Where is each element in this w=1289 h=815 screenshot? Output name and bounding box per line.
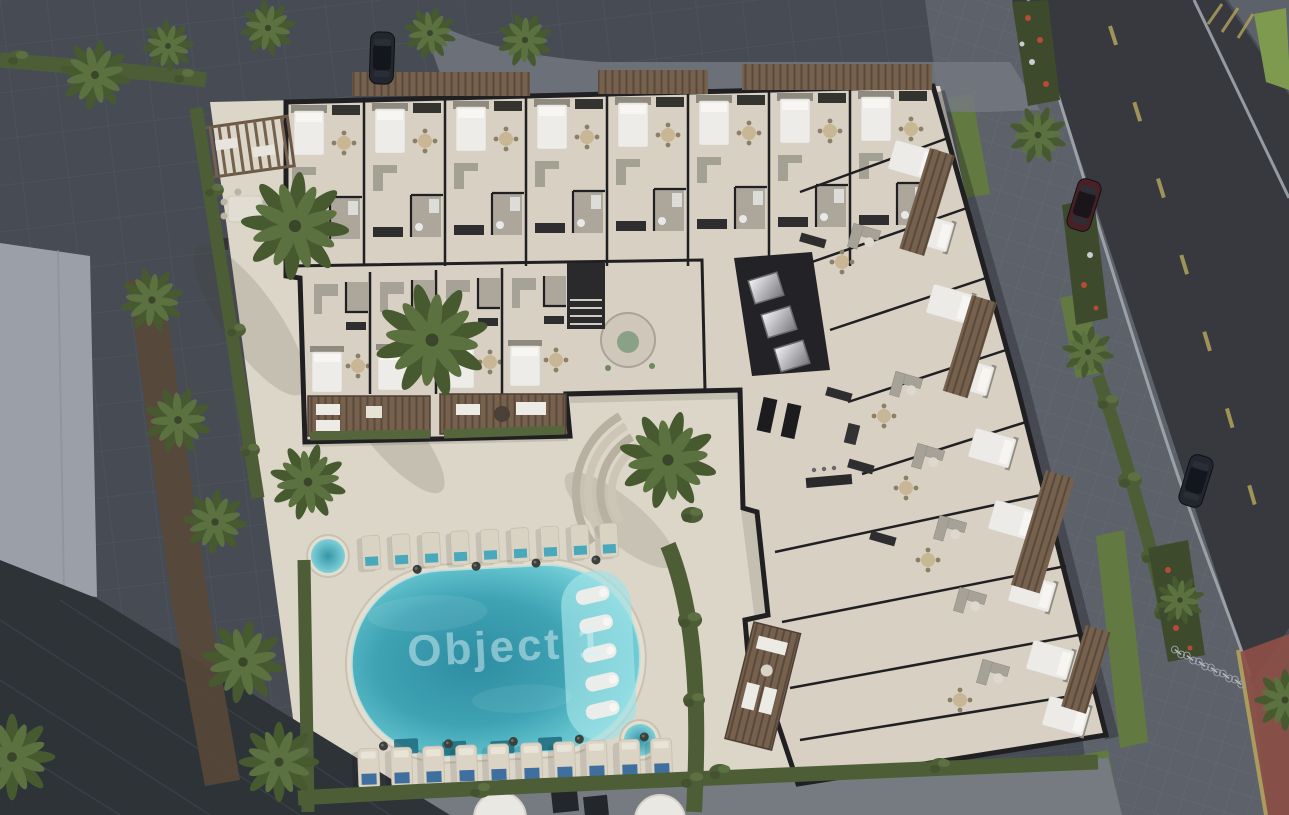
bush xyxy=(173,68,195,84)
terrace-table xyxy=(366,406,382,418)
parked-car xyxy=(369,32,395,85)
bush xyxy=(929,758,951,774)
bush xyxy=(1097,394,1119,410)
bush xyxy=(204,183,224,197)
dumbbell xyxy=(812,468,816,472)
pool-watermark: Object 1 xyxy=(406,617,606,676)
sun-lounger xyxy=(505,527,530,564)
bush xyxy=(678,611,702,629)
entrance-canopy xyxy=(742,64,932,90)
bush xyxy=(240,443,260,457)
lobby-plant xyxy=(649,363,655,369)
sun-lounger xyxy=(475,529,500,566)
sun-lounger xyxy=(445,531,470,568)
neighbor-roof-light xyxy=(0,243,97,597)
entrance-canopy xyxy=(598,70,708,94)
terrace-lounger xyxy=(456,404,480,415)
sun-lounger xyxy=(356,535,381,572)
lobby-plant xyxy=(605,365,611,371)
sun-lounger xyxy=(565,524,590,561)
bush xyxy=(226,323,246,337)
terrace-lounger xyxy=(316,420,340,431)
sun-lounger xyxy=(352,748,380,792)
bush xyxy=(680,771,704,789)
sun-lounger xyxy=(386,534,411,571)
terrace-lounger xyxy=(316,404,340,415)
plunge-pool xyxy=(311,539,345,573)
dumbbell xyxy=(822,467,826,471)
sun-lounger xyxy=(594,523,619,560)
bush xyxy=(683,692,705,708)
dumbbell xyxy=(832,466,836,470)
swimming-pool: Object 1 xyxy=(341,554,651,767)
sun-lounger xyxy=(416,532,441,569)
bush xyxy=(469,782,491,798)
bush xyxy=(681,507,703,523)
bush xyxy=(7,50,29,66)
terrace-sofa xyxy=(516,402,546,415)
bush xyxy=(1118,471,1142,489)
stairwell xyxy=(567,263,605,329)
aerial-render: Object 1 xyxy=(0,0,1289,815)
bush xyxy=(709,764,731,780)
deck-mat xyxy=(583,795,609,815)
sun-lounger xyxy=(535,526,560,563)
terrace-firepit xyxy=(494,406,510,422)
sun-lounger xyxy=(385,747,413,791)
reception-round-sofa xyxy=(617,331,639,353)
